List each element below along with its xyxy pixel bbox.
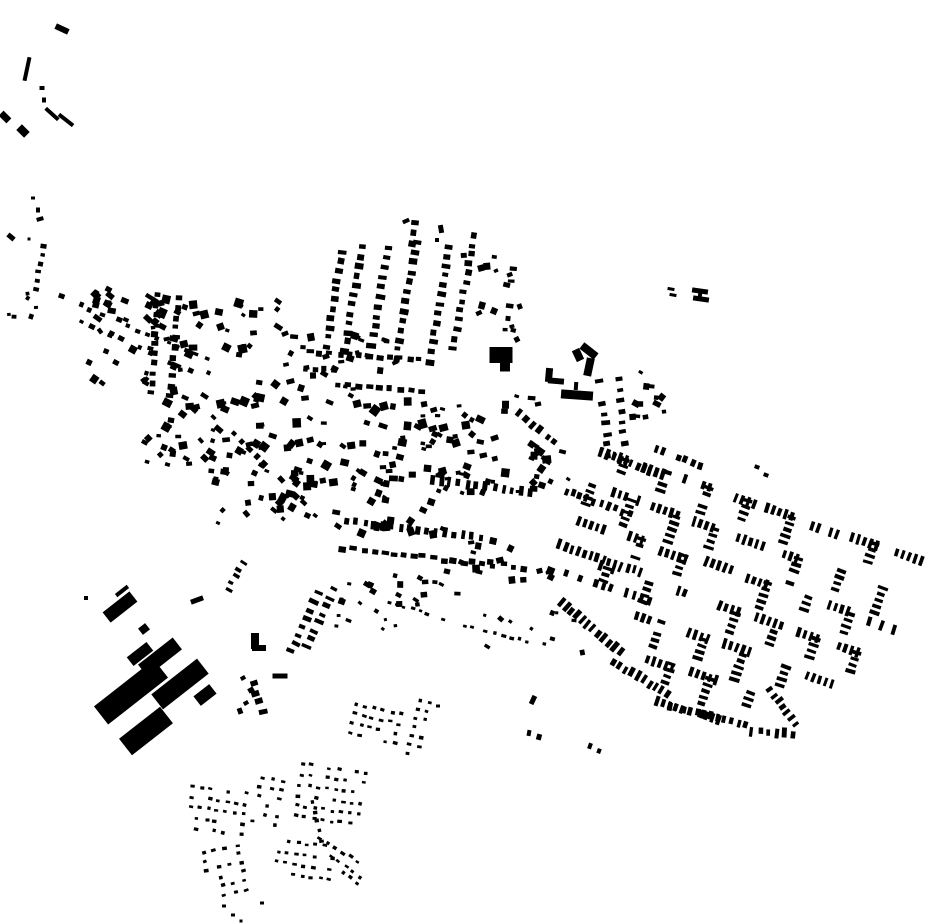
building-footprint	[757, 578, 763, 587]
building-footprint	[256, 380, 263, 386]
building-footprint	[491, 456, 498, 462]
building-footprint	[373, 608, 379, 614]
building-footprint	[662, 409, 667, 413]
building-footprint	[703, 521, 710, 531]
building-footprint	[461, 253, 467, 258]
building-footprint	[195, 321, 203, 329]
building-footprint	[774, 682, 784, 688]
building-footprint	[358, 875, 363, 880]
building-footprint	[715, 560, 722, 571]
building-footprint	[0, 111, 11, 124]
building-footprint	[436, 488, 442, 493]
building-footprint	[249, 310, 258, 318]
building-footprint	[616, 469, 626, 476]
building-footprint	[326, 315, 334, 322]
building-footprint	[618, 409, 626, 415]
building-footprint	[850, 656, 859, 662]
building-footprint	[427, 348, 435, 354]
building-footprint	[355, 860, 359, 864]
building-footprint	[582, 519, 588, 528]
building-footprint	[221, 831, 225, 835]
building-footprint	[462, 462, 471, 471]
building-footprint	[405, 752, 409, 756]
building-footprint	[602, 565, 612, 571]
building-footprint	[728, 565, 734, 574]
building-footprint	[227, 863, 231, 866]
building-footprint	[329, 478, 339, 486]
building-footprint	[864, 553, 875, 560]
building-footprint	[435, 238, 439, 242]
building-footprint	[313, 842, 317, 845]
building-footprint	[309, 774, 313, 777]
building-footprint	[697, 462, 704, 470]
building-footprint	[780, 533, 791, 540]
building-footprint	[449, 557, 457, 564]
building-footprint	[421, 414, 426, 417]
building-footprint	[525, 640, 529, 643]
building-footprint	[334, 777, 339, 781]
building-footprint	[385, 246, 393, 251]
building-footprint	[25, 292, 29, 296]
building-footprint	[650, 656, 656, 667]
building-footprint	[303, 806, 307, 810]
building-footprint	[622, 510, 633, 516]
building-footprint	[652, 400, 662, 408]
building-footprint	[366, 384, 373, 389]
building-footprint	[374, 304, 383, 310]
building-footprint	[260, 776, 265, 780]
building-footprint	[103, 591, 138, 622]
building-footprint	[144, 459, 149, 464]
building-footprint	[727, 623, 736, 629]
building-footprint	[186, 461, 192, 465]
building-footprint	[274, 306, 281, 313]
building-footprint	[669, 293, 676, 297]
building-footprint	[536, 733, 542, 740]
building-footprint	[376, 385, 383, 391]
building-footprint	[125, 323, 130, 328]
building-footprint	[746, 647, 752, 658]
building-footprint	[588, 623, 597, 632]
building-footprint	[154, 292, 160, 297]
building-footprint	[231, 430, 237, 436]
building-footprint	[681, 588, 688, 597]
building-footprint	[419, 736, 424, 740]
building-footprint	[350, 869, 354, 873]
building-footprint	[695, 510, 706, 516]
building-footprint	[758, 592, 768, 598]
building-footprint	[469, 532, 474, 540]
building-footprint	[529, 626, 534, 631]
building-footprint	[569, 545, 575, 554]
building-footprint	[397, 387, 404, 393]
building-footprint	[388, 719, 393, 722]
building-footprint	[331, 810, 335, 813]
building-footprint	[376, 355, 384, 361]
building-footprint	[387, 601, 392, 605]
building-footprint	[656, 504, 663, 514]
building-footprint	[478, 301, 486, 310]
building-footprint	[128, 344, 138, 354]
building-footprint	[158, 322, 167, 330]
building-footprint	[795, 627, 802, 638]
building-footprint	[58, 113, 75, 127]
building-footprint	[214, 809, 218, 812]
building-footprint	[210, 414, 216, 420]
building-footprint	[492, 255, 497, 259]
building-footprint	[831, 586, 840, 592]
building-footprint	[566, 477, 571, 482]
building-footprint	[451, 336, 458, 343]
building-footprint	[501, 634, 507, 638]
building-footprint	[692, 629, 699, 640]
building-footprint	[277, 475, 285, 484]
building-footprint	[607, 583, 614, 592]
building-footprint	[634, 414, 640, 418]
building-footprint	[792, 721, 799, 728]
building-footprint	[728, 717, 734, 724]
building-footprint	[326, 775, 330, 779]
building-footprint	[357, 734, 362, 738]
building-footprint	[588, 551, 594, 561]
building-footprint	[439, 282, 447, 288]
building-footprint	[313, 811, 318, 815]
building-footprint	[766, 729, 770, 735]
building-footprint	[817, 675, 823, 684]
building-footprint	[175, 435, 181, 439]
building-footprint	[350, 487, 356, 492]
building-footprint	[559, 449, 567, 454]
building-footprint	[260, 902, 264, 905]
building-footprint	[40, 86, 45, 90]
building-footprint	[362, 714, 367, 718]
building-footprint	[643, 383, 650, 390]
building-footprint	[456, 307, 463, 313]
building-footprint	[833, 581, 841, 586]
building-footprint	[625, 563, 631, 573]
building-footprint	[423, 465, 431, 473]
building-footprint	[615, 376, 622, 381]
building-footprint	[287, 840, 291, 844]
building-footprint	[461, 530, 466, 539]
building-footprint	[436, 705, 440, 708]
building-footprint	[314, 590, 323, 596]
building-footprint	[769, 628, 778, 635]
building-footprint	[639, 613, 646, 623]
building-footprint	[98, 379, 105, 386]
building-footprint	[286, 647, 295, 654]
building-footprint	[467, 449, 475, 454]
building-footprint	[120, 297, 129, 305]
building-footprint	[398, 476, 404, 482]
building-footprint	[250, 680, 259, 687]
building-footprint	[338, 360, 344, 364]
building-footprint	[716, 600, 723, 611]
building-footprint	[393, 624, 397, 628]
building-footprint	[344, 518, 350, 525]
building-footprint	[200, 392, 209, 400]
building-footprint	[663, 689, 671, 698]
building-footprint	[296, 794, 301, 798]
building-footprint	[725, 629, 735, 635]
building-footprint	[234, 890, 238, 894]
building-footprint	[834, 573, 845, 581]
building-footprint	[338, 546, 346, 553]
building-footprint	[326, 877, 331, 881]
building-footprint	[617, 388, 623, 393]
building-footprint	[327, 767, 331, 770]
building-footprint	[596, 748, 601, 754]
building-footprint	[845, 668, 856, 675]
building-footprint	[660, 699, 666, 708]
building-footprint	[455, 316, 463, 321]
building-footprint	[616, 397, 625, 403]
building-footprint	[734, 643, 740, 653]
building-footprint	[151, 326, 156, 330]
building-footprint	[675, 586, 681, 597]
building-footprint	[785, 580, 795, 587]
building-footprint	[119, 707, 173, 756]
building-footprint	[407, 356, 414, 362]
building-footprint	[583, 357, 595, 376]
building-footprint	[429, 438, 436, 445]
building-footprint	[468, 540, 475, 544]
building-footprint	[877, 591, 886, 597]
building-footprint	[369, 332, 378, 337]
building-footprint	[236, 851, 240, 855]
building-footprint	[733, 493, 739, 503]
building-footprint	[343, 778, 347, 782]
building-footprint	[521, 414, 530, 423]
building-footprint	[306, 436, 314, 443]
building-footprint	[208, 796, 213, 800]
building-footprint	[599, 500, 604, 508]
building-footprint	[453, 326, 462, 332]
building-footprint	[226, 790, 230, 793]
building-footprint	[188, 666, 193, 670]
building-footprint	[274, 298, 282, 306]
building-footprint	[365, 354, 373, 360]
building-footprint	[460, 491, 465, 496]
building-footprint	[869, 609, 880, 616]
building-footprint	[258, 708, 268, 715]
building-footprint	[395, 337, 405, 344]
building-footprint	[735, 533, 741, 542]
building-footprint	[545, 434, 552, 441]
building-footprint	[384, 618, 388, 622]
building-footprint	[747, 537, 753, 546]
building-footprint	[42, 98, 46, 103]
building-footprint	[242, 803, 246, 807]
building-footprint	[399, 308, 409, 315]
building-footprint	[406, 516, 416, 526]
building-footprint	[294, 813, 299, 817]
building-footprint	[337, 614, 341, 617]
building-footprint	[776, 676, 787, 683]
building-footprint	[216, 521, 221, 525]
building-footprint	[281, 780, 286, 783]
building-footprint	[508, 619, 513, 624]
building-footprint	[404, 397, 412, 406]
building-footprint	[664, 548, 670, 557]
building-footprint	[36, 216, 44, 222]
building-footprint	[493, 268, 498, 273]
building-footprint	[508, 576, 515, 584]
building-footprint	[728, 641, 734, 651]
building-footprint	[490, 347, 513, 363]
building-footprint	[579, 649, 585, 655]
building-footprint	[801, 600, 811, 606]
building-footprint	[341, 870, 346, 875]
building-footprint	[843, 617, 853, 623]
building-footprint	[221, 342, 232, 353]
building-footprint	[367, 725, 372, 728]
building-footprint	[848, 662, 857, 668]
building-footprint	[430, 329, 437, 336]
building-footprint	[615, 661, 623, 670]
building-footprint	[779, 670, 788, 676]
building-footprint	[520, 566, 527, 573]
building-footprint	[484, 643, 491, 649]
building-footprint	[912, 554, 918, 565]
building-footprint	[322, 442, 326, 445]
building-footprint	[513, 336, 520, 343]
building-footprint	[36, 208, 40, 213]
building-footprint	[765, 686, 773, 693]
building-footprint	[373, 450, 381, 458]
building-footprint	[355, 881, 360, 885]
building-footprint	[709, 558, 716, 568]
building-footprint	[517, 637, 521, 641]
building-footprint	[381, 550, 389, 555]
building-footprint	[502, 485, 507, 494]
building-footprint	[194, 827, 199, 831]
building-footprint	[774, 729, 779, 739]
building-footprint	[362, 781, 366, 784]
building-footprint	[219, 507, 225, 513]
building-footprint	[306, 349, 314, 353]
building-footprint	[443, 568, 450, 574]
building-footprint	[358, 338, 365, 343]
building-footprint	[225, 587, 233, 593]
building-footprint	[376, 727, 381, 731]
building-footprint	[335, 268, 344, 275]
building-footprint	[649, 384, 655, 388]
building-footprint	[390, 403, 396, 410]
building-footprint	[434, 310, 442, 316]
building-footprint	[378, 718, 383, 722]
building-footprint	[297, 384, 305, 392]
building-footprint	[214, 424, 224, 434]
building-footprint	[112, 359, 120, 366]
building-footprint	[501, 409, 508, 414]
building-footprint	[489, 537, 497, 545]
building-footprint	[210, 438, 215, 443]
building-footprint	[782, 727, 787, 737]
building-footprint	[785, 521, 795, 527]
building-footprint	[470, 625, 474, 629]
building-footprint	[828, 527, 834, 537]
building-footprint	[384, 339, 390, 343]
building-footprint	[440, 407, 446, 411]
building-footprint	[809, 521, 815, 531]
building-footprint	[319, 477, 326, 484]
building-footprint	[432, 580, 437, 584]
building-footprint	[424, 527, 430, 535]
building-footprint	[418, 389, 425, 394]
building-footprint	[754, 604, 763, 610]
building-footprint	[375, 294, 385, 301]
building-footprint	[212, 828, 216, 832]
building-footprint	[421, 401, 428, 408]
building-footprint	[810, 673, 817, 683]
building-footprint	[299, 471, 304, 475]
building-footprint	[145, 332, 151, 337]
building-footprint	[606, 558, 612, 566]
building-footprint	[169, 373, 177, 378]
building-footprint	[172, 324, 178, 328]
building-footprint	[238, 438, 245, 445]
building-footprint	[238, 396, 250, 408]
building-footprint	[276, 505, 284, 513]
building-footprint	[312, 817, 316, 820]
building-footprint	[601, 412, 607, 416]
building-footprint	[292, 863, 297, 866]
building-footprint	[738, 510, 749, 517]
building-footprint	[448, 346, 457, 351]
building-footprint	[348, 731, 353, 735]
building-footprint	[623, 588, 629, 598]
building-footprint	[357, 601, 362, 606]
building-footprint	[221, 883, 226, 888]
building-footprint	[397, 327, 404, 333]
building-footprint	[662, 506, 668, 515]
building-footprint	[411, 220, 419, 226]
building-footprint	[348, 811, 352, 814]
building-footprint	[642, 414, 648, 419]
building-footprint	[222, 905, 226, 908]
building-footprint	[637, 567, 643, 577]
building-footprint	[363, 420, 370, 426]
building-footprint	[223, 467, 229, 472]
building-footprint	[335, 383, 340, 388]
building-footprint	[44, 107, 59, 121]
building-footprint	[764, 641, 774, 647]
building-footprint	[167, 340, 172, 344]
building-footprint	[359, 244, 366, 249]
building-footprint	[706, 539, 715, 545]
building-footprint	[178, 367, 183, 372]
building-footprint	[287, 502, 297, 512]
building-footprint	[372, 549, 379, 555]
building-footprint	[425, 359, 434, 366]
building-footprint	[444, 244, 452, 250]
building-footprint	[392, 741, 397, 745]
building-footprint	[412, 725, 416, 729]
building-footprint	[648, 643, 658, 650]
building-footprint	[334, 522, 342, 530]
building-footprint	[461, 421, 470, 430]
building-footprint	[455, 479, 460, 487]
building-footprint	[349, 721, 354, 725]
building-footprint	[731, 670, 742, 676]
building-footprint	[626, 531, 633, 542]
building-footprint	[601, 420, 610, 425]
building-footprint	[189, 345, 198, 351]
building-footprint	[690, 459, 697, 467]
building-footprint	[380, 264, 389, 270]
building-footprint	[826, 600, 832, 610]
